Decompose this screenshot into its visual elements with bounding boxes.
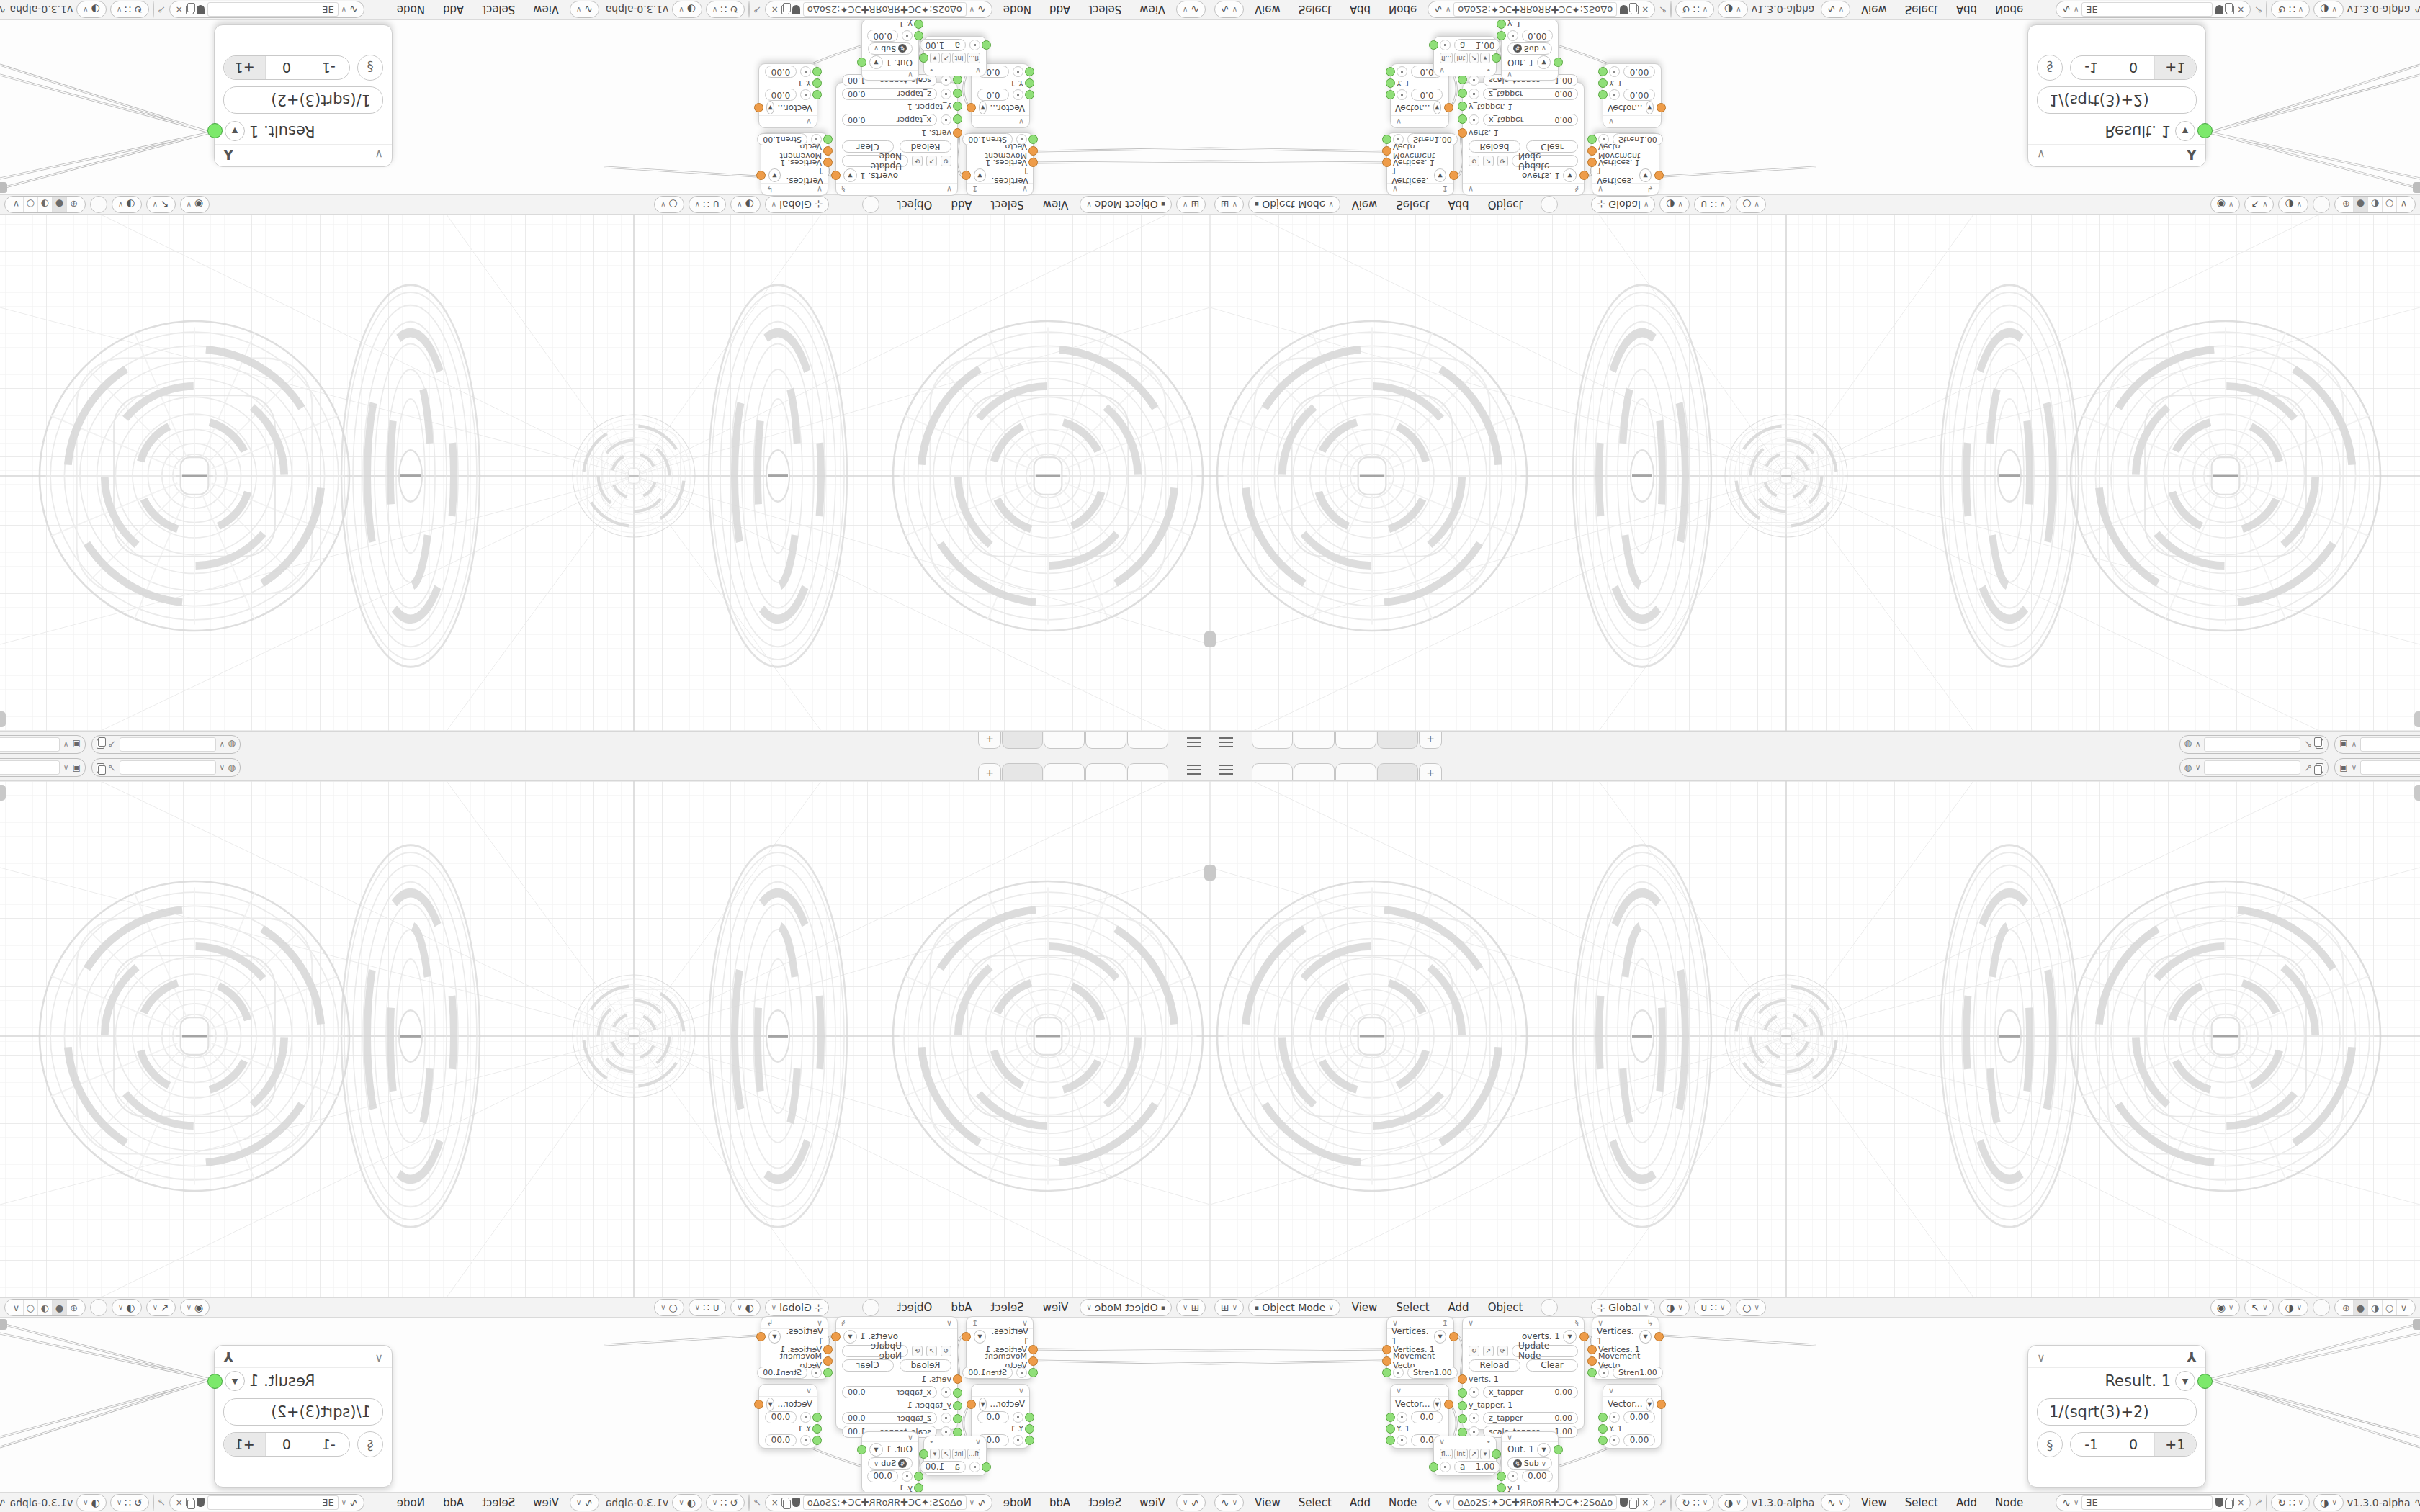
minus-one-button[interactable]: -1 bbox=[2071, 56, 2112, 79]
socket-dial-icon[interactable] bbox=[969, 40, 980, 51]
workspace-tab-active[interactable] bbox=[1002, 763, 1043, 780]
transform-orientation-select[interactable]: ⊹ Global ∨ bbox=[765, 196, 830, 213]
shading-rendered-button[interactable]: ○ bbox=[24, 197, 38, 212]
menu-object[interactable]: Object bbox=[1481, 198, 1531, 211]
falloff-button[interactable]: ◑ ∨ bbox=[1718, 1494, 1748, 1511]
stren-field[interactable]: Stren 1.00 bbox=[1407, 134, 1458, 146]
output-socket[interactable] bbox=[754, 1400, 763, 1409]
eyedropper-icon[interactable]: ↗ bbox=[941, 1449, 951, 1459]
collapse-icon[interactable]: ∨ bbox=[1018, 117, 1024, 126]
input-socket[interactable] bbox=[1429, 1462, 1438, 1472]
input-socket[interactable] bbox=[1598, 67, 1608, 76]
input-socket[interactable] bbox=[1429, 40, 1438, 50]
output-socket[interactable] bbox=[967, 103, 976, 112]
shading-solid-button[interactable]: ● bbox=[2353, 197, 2367, 212]
shading-material-button[interactable]: ◑ bbox=[38, 197, 53, 212]
output-dropdown[interactable]: ▼ bbox=[1433, 102, 1441, 115]
shading-material-button[interactable]: ◑ bbox=[38, 1300, 53, 1315]
output-socket[interactable] bbox=[1492, 1449, 1501, 1459]
socket-dial-icon[interactable] bbox=[1598, 135, 1609, 145]
reload-icon-button[interactable]: ⟳ bbox=[912, 1346, 923, 1356]
value-field[interactable]: 0.00 bbox=[1623, 1411, 1655, 1423]
input-socket[interactable] bbox=[1028, 158, 1038, 167]
collapse-icon[interactable]: ∨ bbox=[1608, 117, 1614, 126]
node-out[interactable]: ∨ Out. 1 ▼ ↯ Sub ∨ 0.00 y. 1 bbox=[861, 1431, 919, 1492]
viewlayer-name-field[interactable] bbox=[2360, 760, 2420, 775]
new-scene-icon[interactable] bbox=[2316, 763, 2323, 773]
input-socket[interactable] bbox=[823, 1345, 833, 1354]
collapse-icon[interactable]: ∨ bbox=[806, 1386, 812, 1395]
plus-one-button[interactable]: +1 bbox=[2154, 1433, 2196, 1456]
unlink-icon[interactable]: × bbox=[1641, 1498, 1649, 1507]
node-editor-left[interactable]: ∨ ↥ Vertices. 1 ▼ Vertices. 1 Movement V… bbox=[604, 1316, 1210, 1492]
input-socket[interactable] bbox=[1587, 158, 1597, 167]
menu-view[interactable]: View bbox=[1132, 4, 1173, 17]
value-field[interactable]: 0.00 bbox=[765, 1434, 797, 1446]
snapping-button[interactable]: ∪ ∷ ∨ bbox=[1694, 196, 1732, 213]
node-vertices-2[interactable]: ∨ ↳ Vertices. 1 ▼ Vertices. 1 Movement V… bbox=[1592, 1316, 1659, 1380]
stren-field[interactable]: Stren 1.00 bbox=[962, 1367, 1013, 1379]
collapse-icon[interactable]: ∨ bbox=[2037, 1351, 2045, 1364]
viewport-3d[interactable] bbox=[0, 781, 1210, 1297]
snap-button[interactable]: ↻ ∷ ∨ bbox=[2271, 1, 2310, 19]
collapse-icon[interactable]: ∨ bbox=[1439, 66, 1445, 76]
menu-select[interactable]: Select bbox=[983, 1301, 1031, 1314]
node-vertices-1[interactable]: ∨ ↥ Vertices. 1 ▼ Vertices. 1 Movement V… bbox=[966, 132, 1034, 196]
node-vertices-1[interactable]: ∨ ↥ Vertices. 1 ▼ Vertices. 1 Movement V… bbox=[966, 1316, 1034, 1380]
node-editor-right[interactable]: ∨ Y Result. 1 ▼ 1/(sqrt(3)+2) § -1 0 +1 bbox=[0, 20, 604, 196]
pin-icon[interactable]: ⊸ bbox=[2252, 3, 2265, 16]
viewport-3d[interactable] bbox=[1210, 215, 2420, 731]
socket-dial-icon[interactable] bbox=[941, 1413, 951, 1423]
overlays-button[interactable]: ↖ ∨ bbox=[146, 196, 176, 213]
tree-selector[interactable]: ∿ ∨ ƎE × bbox=[2056, 1494, 2251, 1511]
snapping-button[interactable]: ∪ ∷ ∨ bbox=[689, 1299, 727, 1316]
output-socket[interactable] bbox=[756, 171, 766, 180]
tree-name-field[interactable]: ƎE bbox=[2081, 1495, 2213, 1510]
falloff-button[interactable]: ◑ ∨ bbox=[672, 1, 702, 19]
menu-add[interactable]: Add bbox=[1343, 1496, 1378, 1509]
hamburger-menu-icon[interactable] bbox=[1187, 737, 1201, 747]
shading-solid-button[interactable]: ● bbox=[53, 197, 67, 212]
zero-button[interactable]: 0 bbox=[266, 56, 308, 79]
input-socket[interactable] bbox=[1587, 135, 1597, 144]
socket-dial-icon[interactable] bbox=[1469, 75, 1479, 86]
fake-user-shield-icon[interactable] bbox=[792, 1498, 800, 1507]
shading-rendered-button[interactable]: ○ bbox=[24, 1300, 38, 1315]
header-circle-widget[interactable] bbox=[748, 1, 750, 19]
header-circle-widget[interactable] bbox=[90, 196, 107, 213]
snap-button[interactable]: ↻ ∷ ∨ bbox=[2271, 1494, 2310, 1511]
menu-add[interactable]: Add bbox=[436, 4, 471, 17]
node-overts-script[interactable]: ∨ § overts. 1 ▼ ↻ ↗ ⟳ Update Node Reload… bbox=[835, 82, 958, 196]
z-tapper-field[interactable]: z_tapper 0.00 bbox=[1483, 88, 1578, 100]
node-result[interactable]: ∨ Y Result. 1 ▼ 1/(sqrt(3)+2) § -1 0 +1 bbox=[214, 24, 393, 167]
scene-name-field[interactable] bbox=[2204, 760, 2300, 775]
scene-name-field[interactable] bbox=[120, 760, 216, 775]
output-dropdown[interactable]: ▼ bbox=[768, 1330, 781, 1344]
plus-one-button[interactable]: +1 bbox=[224, 1433, 266, 1456]
dropdown-button[interactable]: ▾ bbox=[1480, 1449, 1490, 1459]
link-button[interactable]: § bbox=[2037, 55, 2063, 81]
editor-type-button[interactable]: ∿ ∨ bbox=[570, 1494, 599, 1511]
node-vector-2[interactable]: ∨ Vector... ▼ 0.00 Y. 1 0.00 bbox=[1603, 1384, 1662, 1449]
area-divider[interactable] bbox=[604, 0, 604, 196]
menu-add[interactable]: Add bbox=[1441, 198, 1476, 211]
stren-field[interactable]: Stren 1.00 bbox=[962, 134, 1013, 146]
value-field[interactable]: 0.00 bbox=[1623, 1434, 1655, 1446]
minus-one-button[interactable]: -1 bbox=[308, 56, 349, 79]
new-scene-icon[interactable] bbox=[97, 763, 104, 773]
falloff-button[interactable]: ◑ ∨ bbox=[1718, 1, 1748, 19]
tree-selector[interactable]: ∿ ∨ ƎE × bbox=[169, 1494, 364, 1511]
operation-select[interactable]: ↯ Sub ∨ bbox=[868, 1457, 913, 1470]
input-socket[interactable] bbox=[1497, 1483, 1506, 1492]
input-socket[interactable] bbox=[812, 67, 822, 76]
editor-type-button[interactable]: ⊞ ∨ bbox=[1176, 196, 1206, 213]
socket-dial-icon[interactable] bbox=[1609, 90, 1620, 101]
reload-button[interactable]: Reload bbox=[1469, 141, 1520, 153]
output-socket[interactable] bbox=[1444, 1400, 1453, 1409]
editor-type-button[interactable]: ∿ ∨ bbox=[1821, 1, 1850, 19]
stren-field[interactable]: Stren 1.00 bbox=[1407, 1367, 1458, 1379]
socket-dial-icon[interactable] bbox=[941, 114, 951, 125]
pin-icon[interactable]: ⊸ bbox=[1656, 1495, 1669, 1508]
clear-button[interactable]: Clear bbox=[1526, 1359, 1578, 1372]
output-socket[interactable] bbox=[857, 58, 866, 67]
header-circle-widget[interactable] bbox=[2266, 1, 2267, 19]
output-dropdown[interactable]: ▼ bbox=[766, 1398, 774, 1411]
socket-dial-icon[interactable] bbox=[1507, 31, 1518, 42]
sidebar-collapse-tab[interactable] bbox=[0, 711, 6, 727]
formula-field[interactable]: 1/(sqrt(3)+2) bbox=[2037, 1398, 2197, 1426]
collapsed-node-pill[interactable] bbox=[2413, 182, 2420, 193]
float-type-button[interactable]: fl... bbox=[1440, 1449, 1453, 1459]
int-type-button[interactable]: int bbox=[952, 1449, 965, 1459]
input-socket[interactable] bbox=[953, 1414, 962, 1423]
collapse-icon[interactable]: ∨ bbox=[375, 1351, 383, 1364]
toolbar-collapse-tab[interactable] bbox=[1204, 865, 1210, 881]
tree-name-field[interactable]: oΔo2S:✦ƆC✚ЯRoЯR✚ƆC✦:2SoΔo bbox=[803, 1495, 967, 1510]
clear-button[interactable]: Clear bbox=[842, 1359, 894, 1372]
input-socket[interactable] bbox=[982, 1462, 991, 1472]
input-socket[interactable] bbox=[1028, 1356, 1038, 1366]
minus-one-button[interactable]: -1 bbox=[2071, 1433, 2112, 1456]
input-socket[interactable] bbox=[953, 1388, 962, 1398]
snap-button[interactable]: ↻ ∷ ∨ bbox=[706, 1494, 745, 1511]
clear-button[interactable]: Clear bbox=[842, 141, 894, 153]
workspace-tab-active[interactable] bbox=[1377, 763, 1418, 780]
node-editor-left[interactable]: ∨ ↥ Vertices. 1 ▼ Vertices. 1 Movement V… bbox=[1210, 20, 1816, 196]
transform-orientation-select[interactable]: ⊹ Global ∨ bbox=[1591, 196, 1656, 213]
input-socket[interactable] bbox=[823, 1368, 833, 1377]
output-dropdown[interactable]: ▼ bbox=[1434, 1330, 1446, 1344]
input-socket[interactable] bbox=[812, 90, 822, 99]
viewlayer-selector[interactable]: ▣ ∨ bbox=[0, 735, 86, 754]
value-field[interactable]: 0.0 bbox=[1411, 89, 1443, 102]
formula-field[interactable]: 1/(sqrt(3)+2) bbox=[223, 1398, 383, 1426]
transform-orientation-select[interactable]: ⊹ Global ∨ bbox=[1591, 1299, 1656, 1316]
reload-button[interactable]: Reload bbox=[900, 1359, 951, 1372]
input-socket[interactable] bbox=[1382, 1356, 1391, 1366]
gizmos-button[interactable]: ◉ ∨ bbox=[2210, 196, 2241, 213]
add-workspace-tab-button[interactable]: + bbox=[1419, 763, 1442, 780]
refresh-button[interactable]: ↻ bbox=[1469, 1346, 1479, 1356]
node-vertices-2[interactable]: ∨ ↳ Vertices. 1 ▼ Vertices. 1 Movement V… bbox=[1592, 132, 1659, 196]
menu-view[interactable]: View bbox=[1247, 4, 1288, 17]
menu-add[interactable]: Add bbox=[1949, 1496, 1984, 1509]
update-node-button[interactable]: Update Node bbox=[842, 156, 908, 168]
collapse-icon[interactable]: ∨ bbox=[946, 184, 952, 194]
input-socket[interactable] bbox=[1025, 1413, 1034, 1422]
node-overts-script[interactable]: ∨ § overts. 1 ▼ ↻ ↗ ⟳ Update Node Reload… bbox=[835, 1316, 958, 1430]
input-socket[interactable] bbox=[1587, 146, 1597, 156]
int-type-button[interactable]: int bbox=[1454, 53, 1467, 64]
result-output-socket[interactable] bbox=[2197, 1374, 2213, 1389]
output-socket[interactable] bbox=[1654, 171, 1664, 180]
input-socket[interactable] bbox=[1382, 1368, 1391, 1377]
input-socket[interactable] bbox=[823, 1356, 833, 1366]
menu-select[interactable]: Select bbox=[475, 4, 522, 17]
header-circle-widget[interactable] bbox=[863, 1299, 880, 1316]
socket-dial-icon[interactable] bbox=[811, 1367, 822, 1378]
input-socket[interactable] bbox=[1497, 1472, 1506, 1481]
input-socket[interactable] bbox=[1382, 146, 1391, 156]
input-socket[interactable] bbox=[1458, 128, 1467, 138]
header-circle-widget[interactable] bbox=[153, 1, 154, 19]
input-socket[interactable] bbox=[1598, 1424, 1608, 1434]
scene-selector[interactable]: ◍ ∨ ⊸ bbox=[91, 735, 241, 754]
hamburger-menu-icon[interactable] bbox=[1219, 737, 1233, 747]
x-tapper-field[interactable]: x_tapper 0.00 bbox=[842, 1386, 937, 1398]
stren-field[interactable]: Stren 1.00 bbox=[1613, 1367, 1663, 1379]
proportional-editing-button[interactable]: ○ ∨ bbox=[1736, 1299, 1766, 1316]
input-socket[interactable] bbox=[1587, 1368, 1597, 1377]
output-socket[interactable] bbox=[857, 1445, 866, 1454]
menu-add[interactable]: Add bbox=[1343, 4, 1378, 17]
output-socket[interactable] bbox=[756, 1332, 766, 1341]
collapsed-node-pill[interactable] bbox=[0, 182, 7, 193]
node-result[interactable]: ∨ Y Result. 1 ▼ 1/(sqrt(3)+2) § -1 0 +1 bbox=[2027, 24, 2206, 167]
input-socket[interactable] bbox=[1458, 1374, 1467, 1384]
xray-button[interactable]: ◑ ∨ bbox=[2278, 1299, 2308, 1316]
falloff-button[interactable]: ◑ ∨ bbox=[76, 1, 107, 19]
menu-view[interactable]: View bbox=[1036, 1301, 1076, 1314]
menu-select[interactable]: Select bbox=[1898, 1496, 1945, 1509]
output-socket[interactable] bbox=[1449, 1332, 1458, 1341]
zero-button[interactable]: 0 bbox=[266, 1433, 308, 1456]
output-dropdown[interactable]: ▼ bbox=[1433, 1398, 1441, 1411]
a-field[interactable]: a -1.00 bbox=[1454, 1461, 1500, 1473]
menu-select[interactable]: Select bbox=[1898, 4, 1945, 17]
input-socket[interactable] bbox=[1458, 115, 1467, 125]
collapse-icon[interactable]: ∨ bbox=[975, 66, 981, 76]
scene-selector[interactable]: ◍ ∨ ⊸ bbox=[2179, 758, 2329, 777]
menu-add[interactable]: Add bbox=[1042, 4, 1077, 17]
menu-view[interactable]: View bbox=[526, 1496, 566, 1509]
socket-dial-icon[interactable] bbox=[1609, 1412, 1620, 1423]
workspace-tab[interactable] bbox=[1252, 763, 1293, 780]
output-socket[interactable] bbox=[831, 1332, 841, 1341]
socket-dial-icon[interactable] bbox=[800, 1435, 811, 1446]
pivot-point-button[interactable]: ◑ ∨ bbox=[1659, 1299, 1690, 1316]
input-socket[interactable] bbox=[823, 158, 833, 167]
link-button[interactable]: § bbox=[357, 55, 383, 81]
value-field[interactable]: 0.00 bbox=[1522, 30, 1553, 42]
socket-dial-icon[interactable] bbox=[1013, 90, 1023, 101]
copy-icon[interactable] bbox=[781, 5, 789, 14]
output-dropdown[interactable]: ▼ bbox=[1646, 102, 1654, 115]
tree-name-field[interactable]: ƎE bbox=[2081, 3, 2213, 17]
socket-dial-icon[interactable] bbox=[902, 31, 913, 42]
copy-icon[interactable] bbox=[1631, 5, 1639, 14]
pin-icon[interactable]: ⊸ bbox=[2302, 738, 2315, 751]
value-field[interactable]: 0.0 bbox=[977, 89, 1009, 102]
mode-select[interactable]: ▪ Object Mode ∨ bbox=[1080, 196, 1172, 213]
reload-icon-button[interactable]: ⟳ bbox=[912, 156, 923, 167]
editor-type-button[interactable]: ⊞ ∨ bbox=[1176, 1299, 1206, 1316]
header-circle-widget[interactable] bbox=[2313, 196, 2330, 213]
collapse-icon[interactable]: ∨ bbox=[1396, 1386, 1402, 1395]
tree-name-field[interactable]: oΔo2S:✦ƆC✚ЯRoЯR✚ƆC✦:2SoΔo bbox=[1453, 1495, 1617, 1510]
collapse-icon[interactable]: ∨ bbox=[975, 1437, 981, 1446]
socket-dial-icon[interactable] bbox=[1393, 135, 1404, 145]
fake-user-shield-icon[interactable] bbox=[2215, 5, 2223, 14]
collapse-icon[interactable]: ∨ bbox=[907, 71, 913, 80]
copy-icon[interactable] bbox=[1631, 1498, 1639, 1507]
editor-type-button[interactable]: ∿ ∨ bbox=[1821, 1494, 1850, 1511]
input-socket[interactable] bbox=[1028, 1345, 1038, 1354]
plus-one-button[interactable]: +1 bbox=[224, 56, 266, 79]
x-tapper-field[interactable]: x_tapper 0.00 bbox=[1483, 1386, 1578, 1398]
editor-type-button[interactable]: ∿ ∨ bbox=[570, 1, 599, 19]
input-socket[interactable] bbox=[1458, 1401, 1467, 1410]
menu-select[interactable]: Select bbox=[1291, 4, 1339, 17]
update-node-button[interactable]: Update Node bbox=[1512, 1345, 1578, 1357]
input-socket[interactable] bbox=[1598, 1413, 1608, 1422]
menu-add[interactable]: Add bbox=[944, 198, 979, 211]
input-socket[interactable] bbox=[1458, 76, 1467, 85]
workspace-tab[interactable] bbox=[1044, 732, 1085, 749]
snapping-button[interactable]: ∪ ∷ ∨ bbox=[1694, 1299, 1732, 1316]
shading-rendered-button[interactable]: ○ bbox=[2382, 1300, 2396, 1315]
socket-dial-icon[interactable] bbox=[800, 1412, 811, 1423]
operation-select[interactable]: ↯ Sub ∨ bbox=[1507, 1457, 1552, 1470]
input-socket[interactable] bbox=[914, 1483, 923, 1492]
dropdown-button[interactable]: ▾ bbox=[930, 1449, 940, 1459]
formula-field[interactable]: 1/(sqrt(3)+2) bbox=[223, 86, 383, 114]
input-socket[interactable] bbox=[1386, 1413, 1395, 1422]
menu-add[interactable]: Add bbox=[436, 1496, 471, 1509]
shading-wireframe-button[interactable]: ⊕ bbox=[2339, 197, 2353, 212]
toolbar-collapse-tab[interactable] bbox=[1210, 631, 1216, 647]
output-socket[interactable] bbox=[1579, 171, 1589, 180]
menu-node[interactable]: Node bbox=[1381, 1496, 1424, 1509]
menu-object[interactable]: Object bbox=[1481, 1301, 1531, 1314]
input-socket[interactable] bbox=[953, 89, 962, 99]
sidebar-collapse-tab[interactable] bbox=[2414, 711, 2420, 727]
workspace-tab[interactable] bbox=[1294, 763, 1335, 780]
x-tapper-field[interactable]: x_tapper 0.00 bbox=[842, 114, 937, 126]
mode-select[interactable]: ▪ Object Mode ∨ bbox=[1248, 1299, 1340, 1316]
tree-selector[interactable]: ∿ ∨ oΔo2S:✦ƆC✚ЯRoЯR✚ƆC✦:2SoΔo × bbox=[765, 1494, 992, 1511]
collapse-icon[interactable]: ∨ bbox=[1507, 71, 1512, 80]
menu-view[interactable]: View bbox=[1854, 1496, 1894, 1509]
fake-user-shield-icon[interactable] bbox=[197, 5, 205, 14]
socket-dial-icon[interactable] bbox=[1397, 1435, 1407, 1446]
socket-dial-icon[interactable] bbox=[1598, 1367, 1609, 1378]
mode-select[interactable]: ▪ Object Mode ∨ bbox=[1080, 1299, 1172, 1316]
workspace-tab[interactable] bbox=[1085, 732, 1126, 749]
viewlayer-selector[interactable]: ▣ ∨ bbox=[2334, 735, 2420, 754]
output-socket[interactable] bbox=[754, 103, 763, 112]
input-socket[interactable] bbox=[1458, 1388, 1467, 1398]
unlink-icon[interactable]: × bbox=[771, 6, 779, 14]
output-dropdown[interactable]: ▼ bbox=[2175, 121, 2195, 141]
menu-object[interactable]: Object bbox=[890, 1301, 940, 1314]
socket-dial-icon[interactable] bbox=[1397, 1412, 1407, 1423]
output-socket[interactable] bbox=[919, 53, 928, 63]
output-socket[interactable] bbox=[1554, 58, 1563, 67]
socket-dial-icon[interactable] bbox=[800, 67, 811, 78]
float-type-button[interactable]: fl... bbox=[967, 53, 980, 64]
gizmos-button[interactable]: ◉ ∨ bbox=[180, 196, 210, 213]
shading-wireframe-button[interactable]: ⊕ bbox=[67, 1300, 81, 1315]
menu-object[interactable]: Object bbox=[890, 198, 940, 211]
node-vertices-1[interactable]: ∨ ↥ Vertices. 1 ▼ Vertices. 1 Movement V… bbox=[1386, 132, 1454, 196]
node-vector-2[interactable]: ∨ Vector... ▼ 0.00 Y. 1 0.00 bbox=[1603, 63, 1662, 128]
collapsed-node-pill[interactable] bbox=[0, 1319, 7, 1330]
input-socket[interactable] bbox=[1028, 146, 1038, 156]
fake-user-shield-icon[interactable] bbox=[792, 5, 800, 14]
socket-dial-icon[interactable] bbox=[902, 1471, 913, 1482]
output-socket[interactable] bbox=[1579, 1332, 1589, 1341]
editor-type-button[interactable]: ∿ ∨ bbox=[1214, 1494, 1244, 1511]
a-field[interactable]: a -1.00 bbox=[920, 40, 966, 52]
socket-dial-icon[interactable] bbox=[1397, 90, 1407, 101]
socket-dial-icon[interactable] bbox=[1609, 1435, 1620, 1446]
input-socket[interactable] bbox=[1386, 67, 1395, 76]
menu-add[interactable]: Add bbox=[1441, 1301, 1476, 1314]
snap-button[interactable]: ↻ ∷ ∨ bbox=[110, 1494, 149, 1511]
input-socket[interactable] bbox=[812, 78, 822, 88]
editor-type-button[interactable]: ∿ ∨ bbox=[1176, 1494, 1206, 1511]
collapse-icon[interactable]: ∨ bbox=[1608, 1386, 1614, 1395]
shading-rendered-button[interactable]: ○ bbox=[2382, 197, 2396, 212]
node-number[interactable]: ∨ • fl... int ↗ ▾ a -1.00 bbox=[1433, 1436, 1497, 1476]
viewport-3d[interactable] bbox=[0, 215, 1210, 731]
input-socket[interactable] bbox=[1598, 78, 1608, 88]
input-socket[interactable] bbox=[1386, 78, 1395, 88]
node-overts-script[interactable]: ∨ § overts. 1 ▼ ↻ ↗ ⟳ Update Node Reload… bbox=[1462, 1316, 1585, 1430]
overlays-button[interactable]: ↖ ∨ bbox=[146, 1299, 176, 1316]
node-out[interactable]: ∨ Out. 1 ▼ ↯ Sub ∨ 0.00 y. 1 bbox=[1501, 1431, 1559, 1492]
value-field[interactable]: 0.0 bbox=[1411, 1411, 1443, 1423]
eyedropper-icon[interactable]: ↗ bbox=[941, 53, 951, 64]
input-socket[interactable] bbox=[1598, 1436, 1608, 1445]
script-button[interactable]: ↗ bbox=[926, 156, 937, 167]
add-workspace-tab-button[interactable]: + bbox=[978, 732, 1001, 749]
script-button[interactable]: ↗ bbox=[926, 1346, 937, 1356]
editor-type-button[interactable]: ∿ ∨ bbox=[1214, 1, 1244, 19]
input-socket[interactable] bbox=[1386, 1424, 1395, 1434]
refresh-button[interactable]: ↻ bbox=[941, 1346, 951, 1356]
xray-button[interactable]: ◑ ∨ bbox=[112, 196, 142, 213]
viewlayer-name-field[interactable] bbox=[2360, 737, 2420, 752]
menu-view[interactable]: View bbox=[1247, 1496, 1288, 1509]
menu-add[interactable]: Add bbox=[1949, 4, 1984, 17]
toolbar-collapse-tab[interactable] bbox=[1204, 631, 1210, 647]
